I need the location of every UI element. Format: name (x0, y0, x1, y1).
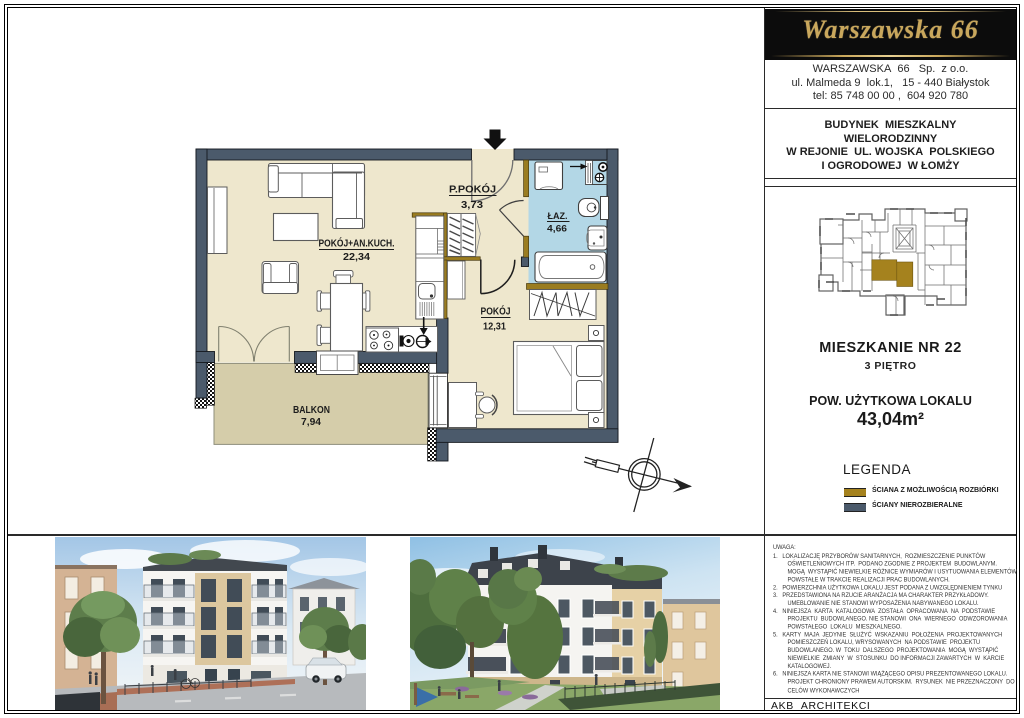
svg-text:POKÓJ: POKÓJ (481, 305, 511, 318)
svg-text:ŁAZ.: ŁAZ. (548, 211, 568, 221)
svg-text:POKÓJ+AN.KUCH.: POKÓJ+AN.KUCH. (319, 237, 395, 250)
svg-text:4,66: 4,66 (547, 224, 567, 234)
svg-text:7,94: 7,94 (301, 417, 322, 428)
svg-text:12,31: 12,31 (483, 322, 506, 333)
svg-text:P.POKÓJ: P.POKÓJ (449, 183, 496, 196)
svg-text:BALKON: BALKON (293, 405, 330, 416)
svg-text:3,73: 3,73 (461, 200, 483, 211)
svg-text:22,34: 22,34 (343, 252, 370, 263)
